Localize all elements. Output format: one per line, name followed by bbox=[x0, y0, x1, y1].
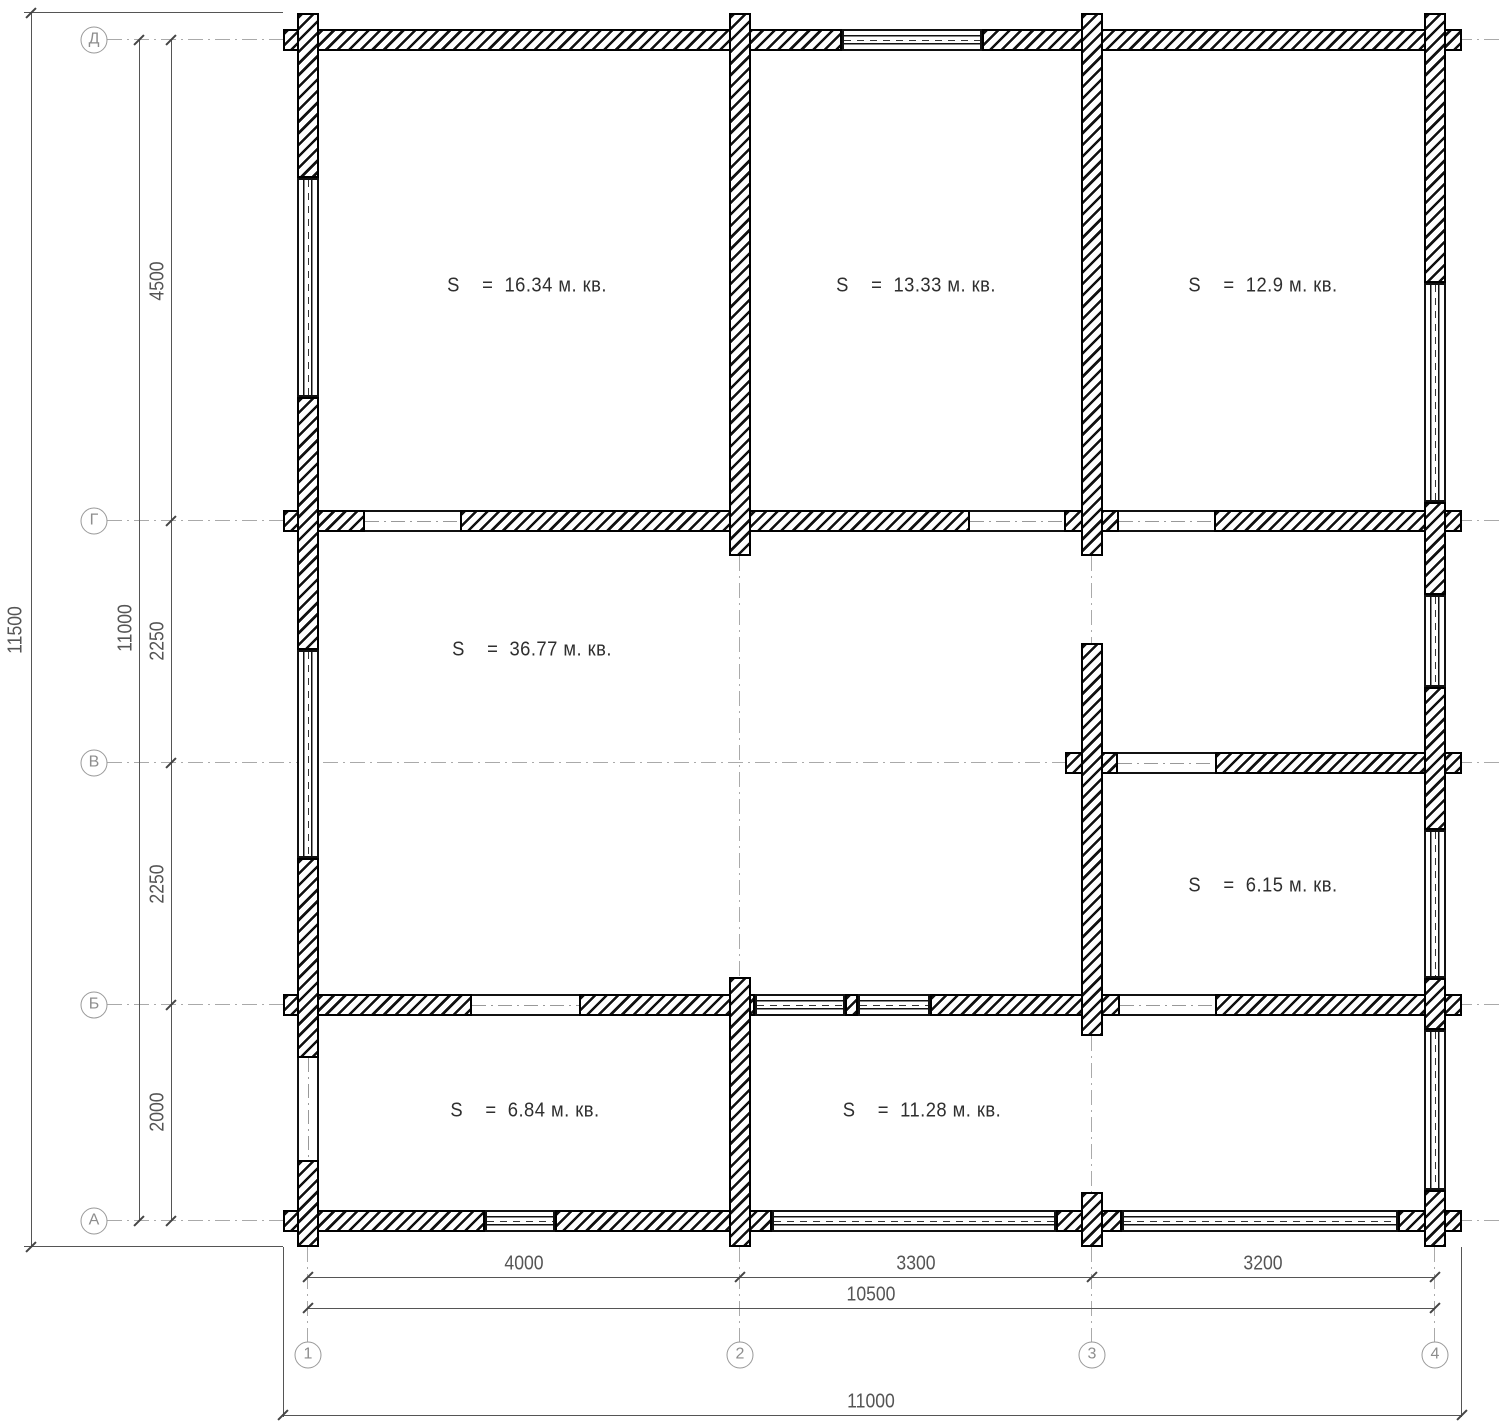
wall-segment bbox=[1424, 502, 1446, 595]
wall-segment bbox=[1081, 13, 1103, 556]
window bbox=[858, 994, 930, 1016]
dimension-label: 3300 bbox=[896, 1253, 935, 1276]
room-area-label: S = 12.9 м. кв. bbox=[1188, 275, 1337, 298]
axis-line-2 bbox=[739, 556, 740, 977]
room-area-label: S = 16.34 м. кв. bbox=[447, 275, 607, 298]
dimension-line bbox=[308, 1308, 1435, 1309]
axis-line-3 bbox=[1091, 556, 1092, 643]
dimension-label: 4500 bbox=[147, 261, 170, 300]
extension-line bbox=[24, 1246, 283, 1247]
extension-line bbox=[24, 12, 283, 13]
wall-segment bbox=[1424, 1190, 1446, 1247]
wall-segment bbox=[1081, 643, 1103, 1036]
door-opening bbox=[970, 510, 1064, 532]
dimension-line bbox=[283, 1415, 1462, 1416]
dimension-label: 10500 bbox=[847, 1284, 896, 1307]
wall-segment bbox=[297, 397, 319, 650]
axis-bubble-col: 4 bbox=[1422, 1342, 1449, 1369]
door-opening bbox=[472, 994, 579, 1016]
door-opening bbox=[1118, 752, 1215, 774]
extension-line bbox=[1461, 1247, 1462, 1417]
axis-bubble-col: 3 bbox=[1079, 1342, 1106, 1369]
door-opening bbox=[1120, 994, 1215, 1016]
window bbox=[772, 1210, 1056, 1232]
door-opening bbox=[365, 510, 460, 532]
window bbox=[1424, 283, 1446, 502]
dimension-label: 2250 bbox=[147, 621, 170, 660]
wall-segment bbox=[1424, 13, 1446, 283]
dimension-label: 4000 bbox=[504, 1253, 543, 1276]
dimension-label: 11000 bbox=[115, 604, 138, 652]
axis-line-2 bbox=[739, 1247, 740, 1342]
wall-segment bbox=[297, 858, 319, 1058]
window bbox=[842, 29, 982, 51]
axis-bubble-row: Г bbox=[81, 508, 108, 535]
dimension-label: 2250 bbox=[147, 864, 170, 903]
window bbox=[1424, 1030, 1446, 1190]
wall-segment bbox=[297, 13, 319, 178]
wall-segment bbox=[845, 994, 858, 1016]
wall-segment bbox=[297, 1160, 319, 1247]
wall-segment bbox=[460, 510, 970, 532]
dimension-label: 3200 bbox=[1243, 1253, 1282, 1276]
wall-segment bbox=[982, 29, 1462, 51]
axis-line-1 bbox=[307, 1247, 308, 1342]
wall-segment bbox=[283, 510, 365, 532]
door-opening bbox=[297, 1058, 319, 1160]
floor-plan-sheet: 11500 11000 4500 2250 2250 2000 4000 330… bbox=[0, 0, 1500, 1422]
axis-bubble-row: Б bbox=[81, 992, 108, 1019]
window bbox=[1424, 830, 1446, 978]
axis-bubble-row: В bbox=[81, 750, 108, 777]
dimension-label: 11500 bbox=[5, 606, 28, 654]
dimension-label: 2000 bbox=[147, 1092, 170, 1131]
door-opening bbox=[1119, 510, 1214, 532]
extension-line bbox=[283, 1247, 284, 1417]
dimension-line bbox=[171, 40, 172, 1221]
axis-line-3 bbox=[1091, 1036, 1092, 1192]
wall-segment bbox=[1081, 1192, 1103, 1247]
room-area-label: S = 6.15 м. кв. bbox=[1188, 875, 1337, 898]
window bbox=[1424, 595, 1446, 687]
axis-line-3 bbox=[1091, 1247, 1092, 1342]
wall-segment bbox=[1424, 687, 1446, 830]
window bbox=[485, 1210, 555, 1232]
axis-bubble-row: А bbox=[81, 1208, 108, 1235]
window bbox=[297, 650, 319, 858]
axis-bubble-col: 1 bbox=[295, 1342, 322, 1369]
room-area-label: S = 36.77 м. кв. bbox=[452, 639, 612, 662]
axis-bubble-col: 2 bbox=[727, 1342, 754, 1369]
window bbox=[755, 994, 845, 1016]
window bbox=[297, 178, 319, 397]
dimension-line bbox=[31, 13, 32, 1247]
wall-segment bbox=[1424, 978, 1446, 1030]
wall-segment bbox=[729, 13, 751, 556]
wall-segment bbox=[729, 977, 751, 1247]
room-area-label: S = 11.28 м. кв. bbox=[843, 1100, 1001, 1123]
window bbox=[1122, 1210, 1398, 1232]
dimension-label: 11000 bbox=[847, 1391, 895, 1414]
axis-bubble-row: Д bbox=[81, 27, 108, 54]
dimension-line bbox=[308, 1277, 1435, 1278]
wall-segment bbox=[283, 29, 842, 51]
axis-line-4 bbox=[1434, 1247, 1435, 1342]
dimension-line bbox=[139, 40, 140, 1221]
room-area-label: S = 13.33 м. кв. bbox=[836, 275, 996, 298]
room-area-label: S = 6.84 м. кв. bbox=[450, 1100, 599, 1123]
